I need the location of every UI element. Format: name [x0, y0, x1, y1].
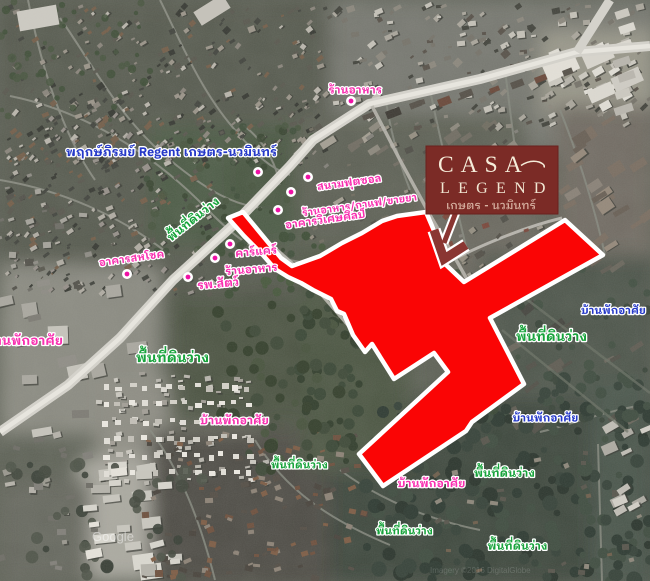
svg-text:Google: Google	[92, 529, 134, 544]
svg-text:Imagery ©2016 DigitalGlobe: Imagery ©2016 DigitalGlobe	[430, 566, 531, 575]
svg-text:CASA: CASA	[438, 152, 529, 178]
svg-text:LEGEND: LEGEND	[440, 180, 554, 197]
